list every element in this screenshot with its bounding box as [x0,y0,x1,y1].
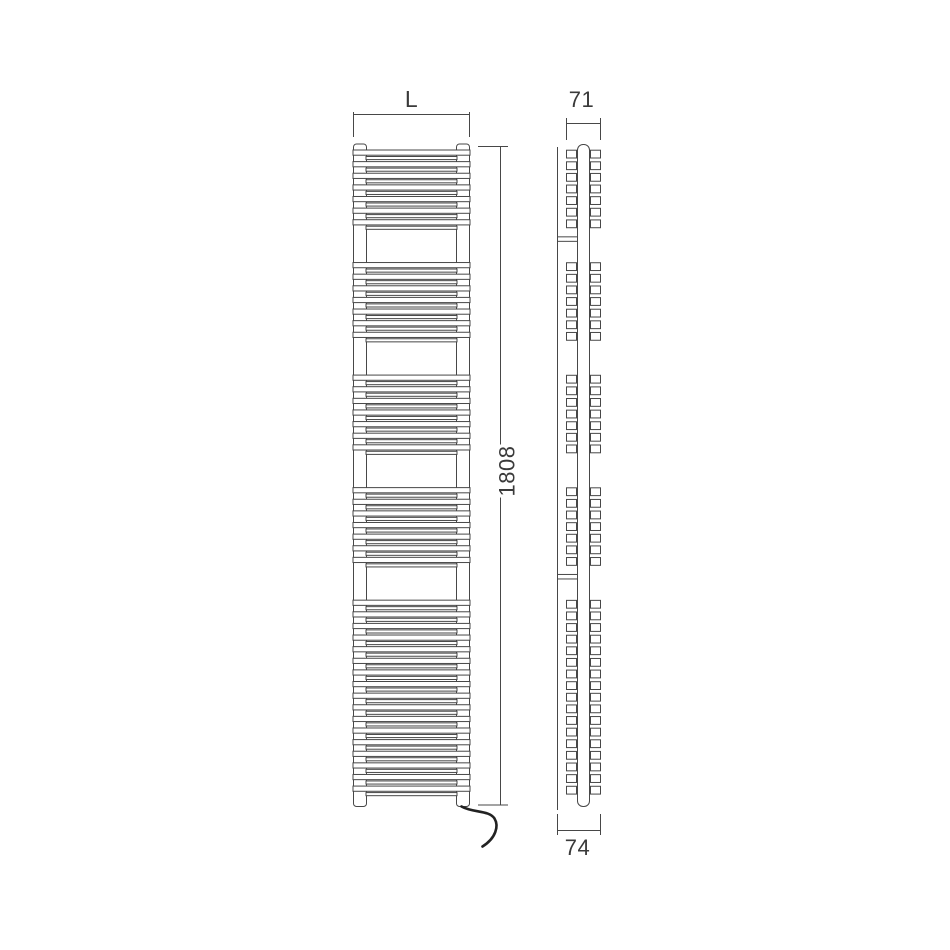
rung-face [353,220,470,225]
rung-end-front [591,220,601,228]
rung-end-front [591,534,601,542]
rung-face [353,693,470,698]
rung-face [353,600,470,605]
rung-face [353,670,470,675]
rung-end-back [567,375,577,383]
rung-underside [366,191,457,194]
rung-underside [366,405,457,408]
rung-end-back [567,693,577,701]
rung-face [353,162,470,167]
rung-face [353,173,470,178]
rung-end-front [591,670,601,678]
rung-underside [366,607,457,610]
rung-end-front [591,410,601,418]
rung-underside [366,642,457,645]
rung-end-front [591,558,601,566]
rung-underside [366,281,457,284]
rung-end-front [591,173,601,181]
rung-face [353,534,470,539]
rung-end-front [591,433,601,441]
rung-face [353,786,470,791]
rung-end-front [591,263,601,271]
rung-underside [366,494,457,497]
rung-underside [366,723,457,726]
rung-end-front [591,162,601,170]
rung-face [353,763,470,768]
rung-end-front [591,150,601,158]
rung-end-back [567,410,577,418]
rung-underside [366,769,457,772]
rung-end-back [567,399,577,407]
rung-underside [366,440,457,443]
rung-underside [366,215,457,218]
rung-end-back [567,150,577,158]
rung-underside [366,393,457,396]
rung-end-back [567,612,577,620]
rung-underside [366,168,457,171]
rung-end-back [567,511,577,519]
rung-end-front [591,499,601,507]
rung-end-back [567,763,577,771]
rung-end-back [567,786,577,794]
side-view [558,145,601,811]
depth-top-dimension [567,118,601,140]
rung-end-back [567,635,577,643]
rung-end-front [591,775,601,783]
rung-face [353,286,470,291]
rung-underside [366,304,457,307]
rung-face [353,445,470,450]
rung-end-back [567,740,577,748]
rung-face [353,557,470,562]
rung-end-back [567,445,577,453]
rung-face [353,398,470,403]
rung-end-back [567,321,577,329]
wall-bracket [558,574,578,579]
rung-end-back [567,705,577,713]
rung-end-back [567,600,577,608]
rung-end-back [567,682,577,690]
rung-end-front [591,387,601,395]
rung-end-front [591,332,601,340]
rung-end-back [567,546,577,554]
rung-end-front [591,635,601,643]
rung-underside [366,552,457,555]
rung-end-front [591,740,601,748]
rung-underside [366,180,457,183]
rung-end-back [567,274,577,282]
rung-end-front [591,705,601,713]
rung-end-front [591,647,601,655]
rung-underside [366,382,457,385]
drawing-svg [0,0,950,950]
rung-end-front [591,286,601,294]
rung-end-back [567,298,577,306]
rung-end-front [591,682,601,690]
rung-face [353,387,470,392]
rung-face [353,612,470,617]
rung-face [353,499,470,504]
rung-underside [366,428,457,431]
rung-end-back [567,286,577,294]
radiator-technical-drawing: L 1808 71 74 [0,0,950,950]
rung-underside [366,541,457,544]
rung-underside [366,700,457,703]
rung-end-front [591,445,601,453]
rung-end-front [591,399,601,407]
rung-end-back [567,658,577,666]
rung-underside [366,653,457,656]
rung-underside [366,157,457,160]
rung-face [353,546,470,551]
rung-end-front [591,693,601,701]
rung-face [353,522,470,527]
rung-underside [366,688,457,691]
rung-face [353,658,470,663]
rung-face [353,647,470,652]
rung-underside [366,203,457,206]
wall-bracket [558,237,578,242]
rung-underside [366,451,457,454]
rung-underside [366,292,457,295]
rung-end-back [567,488,577,496]
rung-underside [366,316,457,319]
rung-underside [366,781,457,784]
rung-underside [366,746,457,749]
rung-face [353,196,470,201]
rung-face [353,716,470,721]
rung-end-front [591,321,601,329]
rung-face [353,740,470,745]
front-view [353,144,496,847]
rung-end-back [567,775,577,783]
rung-face [353,774,470,779]
rung-end-front [591,624,601,632]
rung-end-front [591,717,601,725]
rung-underside [366,226,457,229]
rung-end-back [567,534,577,542]
rung-end-back [567,220,577,228]
rung-end-front [591,375,601,383]
rung-underside [366,564,457,567]
rung-face [353,410,470,415]
width-dimension-label: L [353,86,470,112]
rung-face [353,623,470,628]
rung-face [353,185,470,190]
rung-face [353,263,470,268]
rung-end-front [591,523,601,531]
depth-top-dimension-label: 71 [553,87,610,113]
rung-underside [366,630,457,633]
rung-face [353,321,470,326]
rung-face [353,208,470,213]
rung-face [353,682,470,687]
rung-face [353,635,470,640]
rung-face [353,488,470,493]
rung-underside [366,618,457,621]
rung-underside [366,517,457,520]
rung-end-front [591,728,601,736]
rung-end-front [591,763,601,771]
rung-face [353,728,470,733]
rung-end-front [591,786,601,794]
rung-end-back [567,433,577,441]
rung-end-back [567,263,577,271]
rung-underside [366,758,457,761]
rung-underside [366,529,457,532]
rung-face [353,422,470,427]
rung-underside [366,665,457,668]
rung-underside [366,416,457,419]
rung-underside [366,734,457,737]
rung-underside [366,269,457,272]
rung-end-back [567,162,577,170]
rung-underside [366,339,457,342]
rung-underside [366,506,457,509]
rung-end-front [591,208,601,216]
rung-face [353,150,470,155]
rung-underside [366,711,457,714]
rung-end-back [567,751,577,759]
rung-end-front [591,612,601,620]
rung-end-back [567,387,577,395]
rung-end-back [567,670,577,678]
depth-bottom-dimension [558,814,601,836]
rung-end-front [591,488,601,496]
rung-end-front [591,422,601,430]
rung-end-back [567,185,577,193]
rung-end-back [567,558,577,566]
rung-face [353,751,470,756]
rung-end-back [567,208,577,216]
rung-end-front [591,511,601,519]
rung-underside [366,327,457,330]
rung-end-front [591,274,601,282]
rung-end-front [591,185,601,193]
rung-end-back [567,499,577,507]
rung-end-front [591,309,601,317]
rung-end-back [567,197,577,205]
rung-face [353,332,470,337]
rung-face [353,375,470,380]
rung-face [353,309,470,314]
width-dimension [354,109,470,137]
rung-end-back [567,332,577,340]
rung-end-back [567,647,577,655]
rung-end-front [591,600,601,608]
rung-end-back [567,717,577,725]
rung-face [353,274,470,279]
rung-end-front [591,197,601,205]
rung-face [353,511,470,516]
rung-end-front [591,546,601,554]
rung-end-back [567,422,577,430]
rung-end-front [591,298,601,306]
rung-face [353,297,470,302]
rung-end-back [567,523,577,531]
rung-end-front [591,658,601,666]
height-dimension-label: 1808 [495,445,521,498]
collector-tube-side [578,145,590,807]
rung-end-back [567,173,577,181]
rung-face [353,705,470,710]
rung-face [353,433,470,438]
rung-end-back [567,624,577,632]
rung-underside [366,793,457,796]
depth-bottom-dimension-label: 74 [549,835,606,861]
power-cable [462,807,497,847]
rung-end-front [591,751,601,759]
rung-end-back [567,309,577,317]
rung-end-back [567,728,577,736]
rung-underside [366,676,457,679]
